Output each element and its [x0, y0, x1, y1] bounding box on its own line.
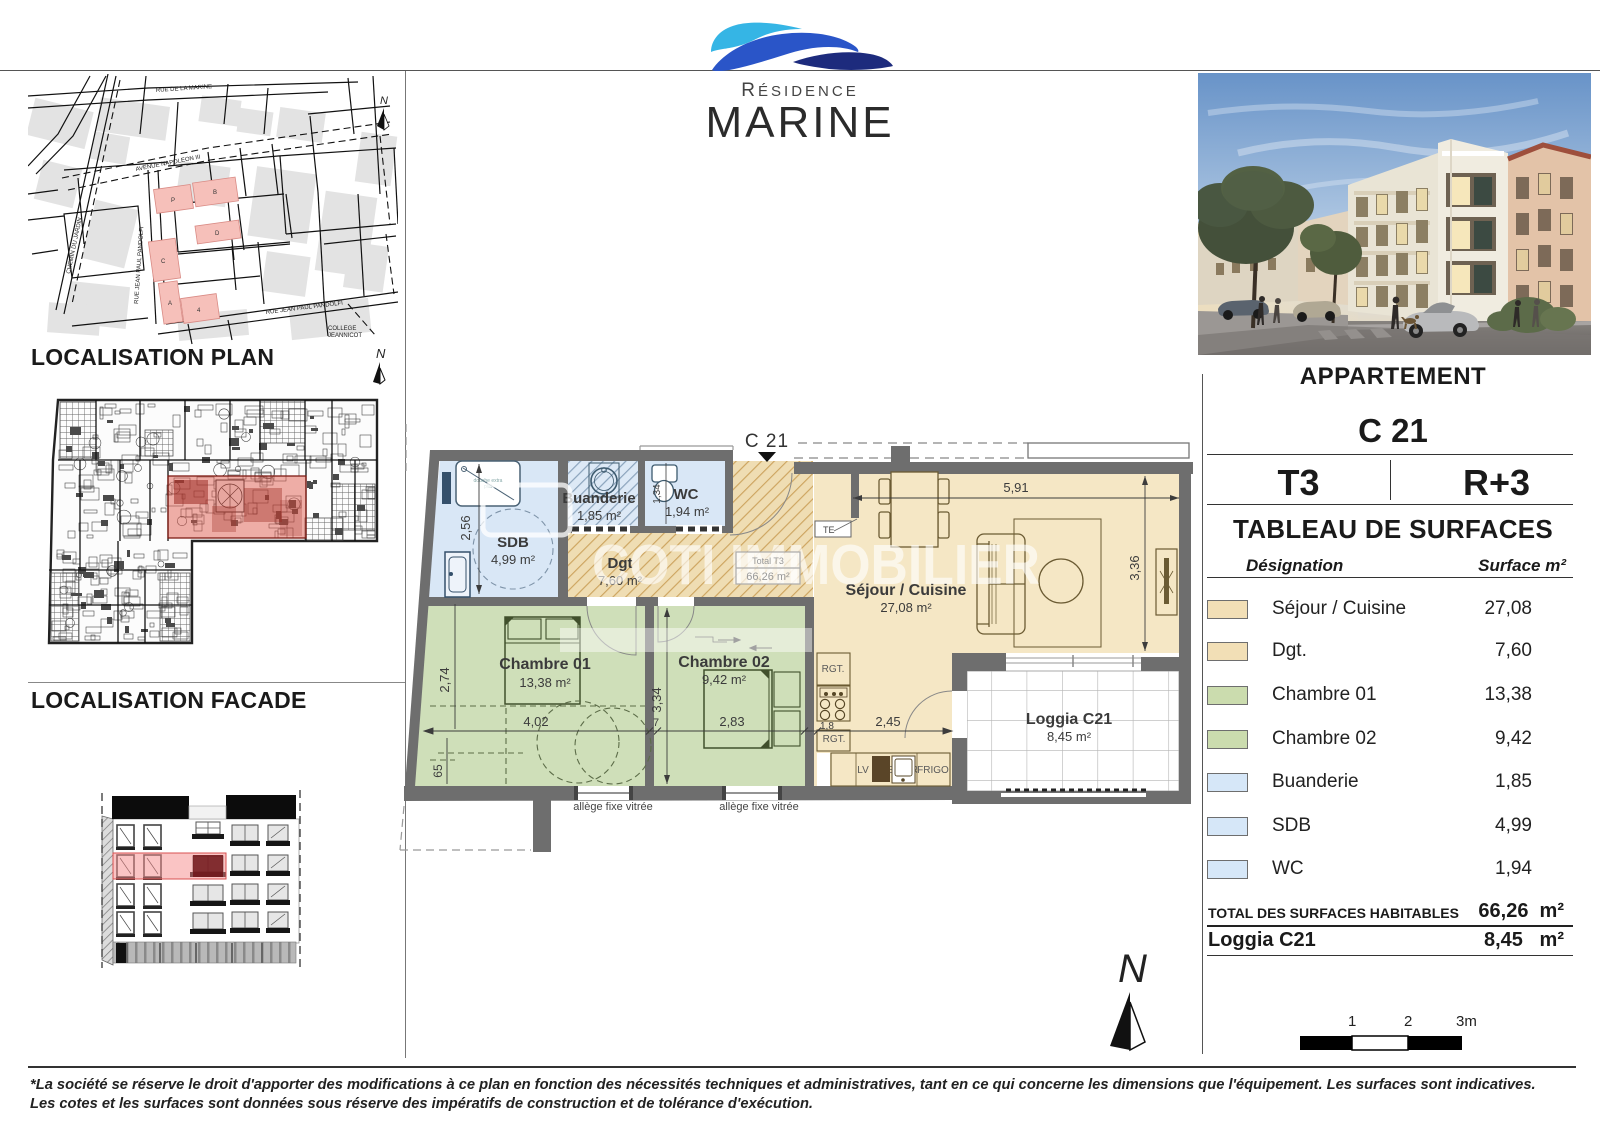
svg-text:Total T3: Total T3 — [752, 556, 784, 566]
svg-text:2,83: 2,83 — [719, 714, 744, 729]
svg-text:N: N — [380, 95, 388, 107]
svg-text:4,02: 4,02 — [523, 714, 548, 729]
svg-text:65: 65 — [431, 764, 445, 778]
svg-text:P: P — [171, 198, 175, 204]
svg-text:3,34: 3,34 — [649, 687, 664, 712]
svg-text:allège fixe vitrée: allège fixe vitrée — [573, 801, 653, 813]
svg-text:COTI IMMOBILIER: COTI IMMOBILIER — [592, 533, 1040, 597]
svg-text:9,42 m²: 9,42 m² — [702, 672, 747, 687]
svg-text:COLLEGE: COLLEGE — [328, 326, 356, 332]
svg-text:RGT.: RGT. — [823, 734, 846, 745]
svg-text:1,94 m²: 1,94 m² — [665, 504, 710, 519]
svg-text:Loggia C21: Loggia C21 — [1026, 711, 1112, 728]
svg-text:66,26 m²: 66,26 m² — [746, 571, 790, 583]
svg-text:FRIGO: FRIGO — [917, 765, 949, 776]
svg-text:1,85 m²: 1,85 m² — [577, 508, 622, 523]
svg-text:B: B — [213, 190, 217, 196]
svg-text:7: 7 — [653, 717, 659, 729]
svg-text:27,08 m²: 27,08 m² — [880, 600, 932, 615]
svg-text:N: N — [376, 346, 386, 361]
svg-text:8,45 m²: 8,45 m² — [1047, 729, 1092, 744]
svg-text:LV: LV — [857, 765, 869, 776]
svg-text:C 21: C 21 — [745, 431, 789, 452]
svg-text:A: A — [168, 301, 172, 307]
svg-text:3m: 3m — [1456, 1013, 1477, 1030]
svg-text:allège fixe vitrée: allège fixe vitrée — [719, 801, 799, 813]
svg-text:2,74: 2,74 — [437, 667, 452, 692]
svg-text:2: 2 — [1404, 1013, 1412, 1030]
svg-text:1: 1 — [1348, 1013, 1356, 1030]
svg-text:N: N — [1118, 950, 1147, 991]
svg-text:Chambre 02: Chambre 02 — [678, 654, 770, 671]
svg-text:13,38 m²: 13,38 m² — [519, 675, 571, 690]
svg-text:Chambre 01: Chambre 01 — [499, 656, 591, 673]
svg-text:1,8: 1,8 — [820, 721, 834, 732]
svg-text:5,91: 5,91 — [1003, 480, 1028, 495]
svg-text:JEANNICOT: JEANNICOT — [328, 333, 362, 339]
svg-text:D: D — [215, 231, 220, 237]
svg-text:WC: WC — [674, 486, 699, 503]
svg-text:RGT.: RGT. — [822, 664, 845, 675]
svg-text:2,56: 2,56 — [458, 515, 473, 540]
svg-text:C: C — [161, 259, 166, 265]
svg-text:3,36: 3,36 — [1127, 555, 1142, 580]
svg-text:2,45: 2,45 — [875, 714, 900, 729]
svg-text:Buanderie: Buanderie — [562, 490, 635, 507]
svg-text:1,34: 1,34 — [652, 484, 663, 504]
svg-text:4,99 m²: 4,99 m² — [491, 552, 536, 567]
